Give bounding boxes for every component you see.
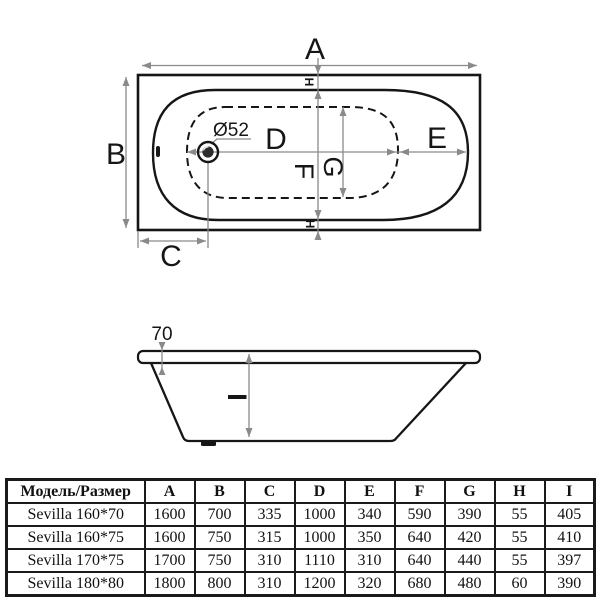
table-cell: 800 (195, 572, 245, 596)
dim-label-d: D (265, 123, 287, 156)
side-rim (138, 351, 480, 363)
dim-label-c: C (160, 240, 182, 273)
table-cell: 1200 (295, 572, 345, 596)
table-header-i: I (545, 480, 595, 504)
side-drain-stub (201, 440, 216, 446)
side-tub-body (151, 363, 466, 441)
table-cell: 55 (495, 549, 545, 572)
overflow-mark (156, 146, 160, 157)
side-view-dimension-lines (162, 342, 249, 437)
table-row: Sevilla 180*80 1800 800 310 1200 320 680… (7, 572, 595, 596)
table-cell-model: Sevilla 160*70 (7, 503, 145, 526)
table-cell: 1600 (145, 503, 195, 526)
table-cell: 1700 (145, 549, 195, 572)
table-header-d: D (295, 480, 345, 504)
drain-diameter-label: Ø52 (213, 120, 249, 141)
table-header-h: H (495, 480, 545, 504)
table-cell: 480 (445, 572, 495, 596)
table-cell: 420 (445, 526, 495, 549)
table-cell: 405 (545, 503, 595, 526)
bathtub-spec-sheet: A B C D E F G H H Ø52 (0, 0, 600, 600)
table-cell-model: Sevilla 170*75 (7, 549, 145, 572)
table-cell: 310 (245, 572, 295, 596)
table-row: Sevilla 160*75 1600 750 315 1000 350 640… (7, 526, 595, 549)
table-cell: 640 (395, 549, 445, 572)
table-cell: 315 (245, 526, 295, 549)
top-view-diagram: A B C D E F G H H Ø52 (106, 33, 480, 273)
table-cell: 640 (395, 526, 445, 549)
table-cell: 1800 (145, 572, 195, 596)
table-cell: 590 (395, 503, 445, 526)
table-cell: 680 (395, 572, 445, 596)
table-header-a: A (145, 480, 195, 504)
dim-label-g: G (318, 156, 348, 177)
table-header-model: Модель/Размер (7, 480, 145, 504)
table-cell: 340 (345, 503, 395, 526)
technical-drawing: A B C D E F G H H Ø52 (0, 0, 600, 472)
table-cell: 440 (445, 549, 495, 572)
dimensions-table: Модель/Размер A B C D E F G H I Sevilla … (5, 478, 596, 597)
table-cell: 350 (345, 526, 395, 549)
table-cell: 750 (195, 526, 245, 549)
table-cell: 320 (345, 572, 395, 596)
table-row: Sevilla 160*70 1600 700 335 1000 340 590… (7, 503, 595, 526)
dim-label-e: E (427, 122, 447, 155)
table-header-c: C (245, 480, 295, 504)
table-cell: 1600 (145, 526, 195, 549)
table-cell-model: Sevilla 180*80 (7, 572, 145, 596)
dim-label-b: B (106, 138, 126, 171)
table-cell: 390 (545, 572, 595, 596)
table-cell: 700 (195, 503, 245, 526)
table-header-f: F (395, 480, 445, 504)
table-cell: 310 (245, 549, 295, 572)
dim-label-a: A (305, 33, 325, 66)
table-cell: 1110 (295, 549, 345, 572)
table-header-g: G (445, 480, 495, 504)
tub-inner-edge (153, 90, 468, 220)
dim-label-i: I (222, 393, 252, 401)
table-header-b: B (195, 480, 245, 504)
table-cell: 60 (495, 572, 545, 596)
table-cell: 390 (445, 503, 495, 526)
dim-label-h-top: H (302, 78, 316, 87)
table-cell-model: Sevilla 160*75 (7, 526, 145, 549)
table-row: Sevilla 170*75 1700 750 310 1110 310 640… (7, 549, 595, 572)
table-cell: 310 (345, 549, 395, 572)
table-cell: 335 (245, 503, 295, 526)
table-cell: 1000 (295, 526, 345, 549)
table-header-e: E (345, 480, 395, 504)
table-cell: 410 (545, 526, 595, 549)
side-view-arrowheads (159, 342, 253, 437)
table-cell: 1000 (295, 503, 345, 526)
dim-label-h-bottom: H (303, 220, 317, 229)
table-header-row: Модель/Размер A B C D E F G H I (7, 480, 595, 504)
table-cell: 750 (195, 549, 245, 572)
dim-label-f: F (289, 163, 319, 180)
table-cell: 55 (495, 526, 545, 549)
table-cell: 397 (545, 549, 595, 572)
rim-height-label: 70 (151, 324, 172, 345)
table-cell: 55 (495, 503, 545, 526)
side-view-diagram: 70 I (138, 324, 480, 446)
